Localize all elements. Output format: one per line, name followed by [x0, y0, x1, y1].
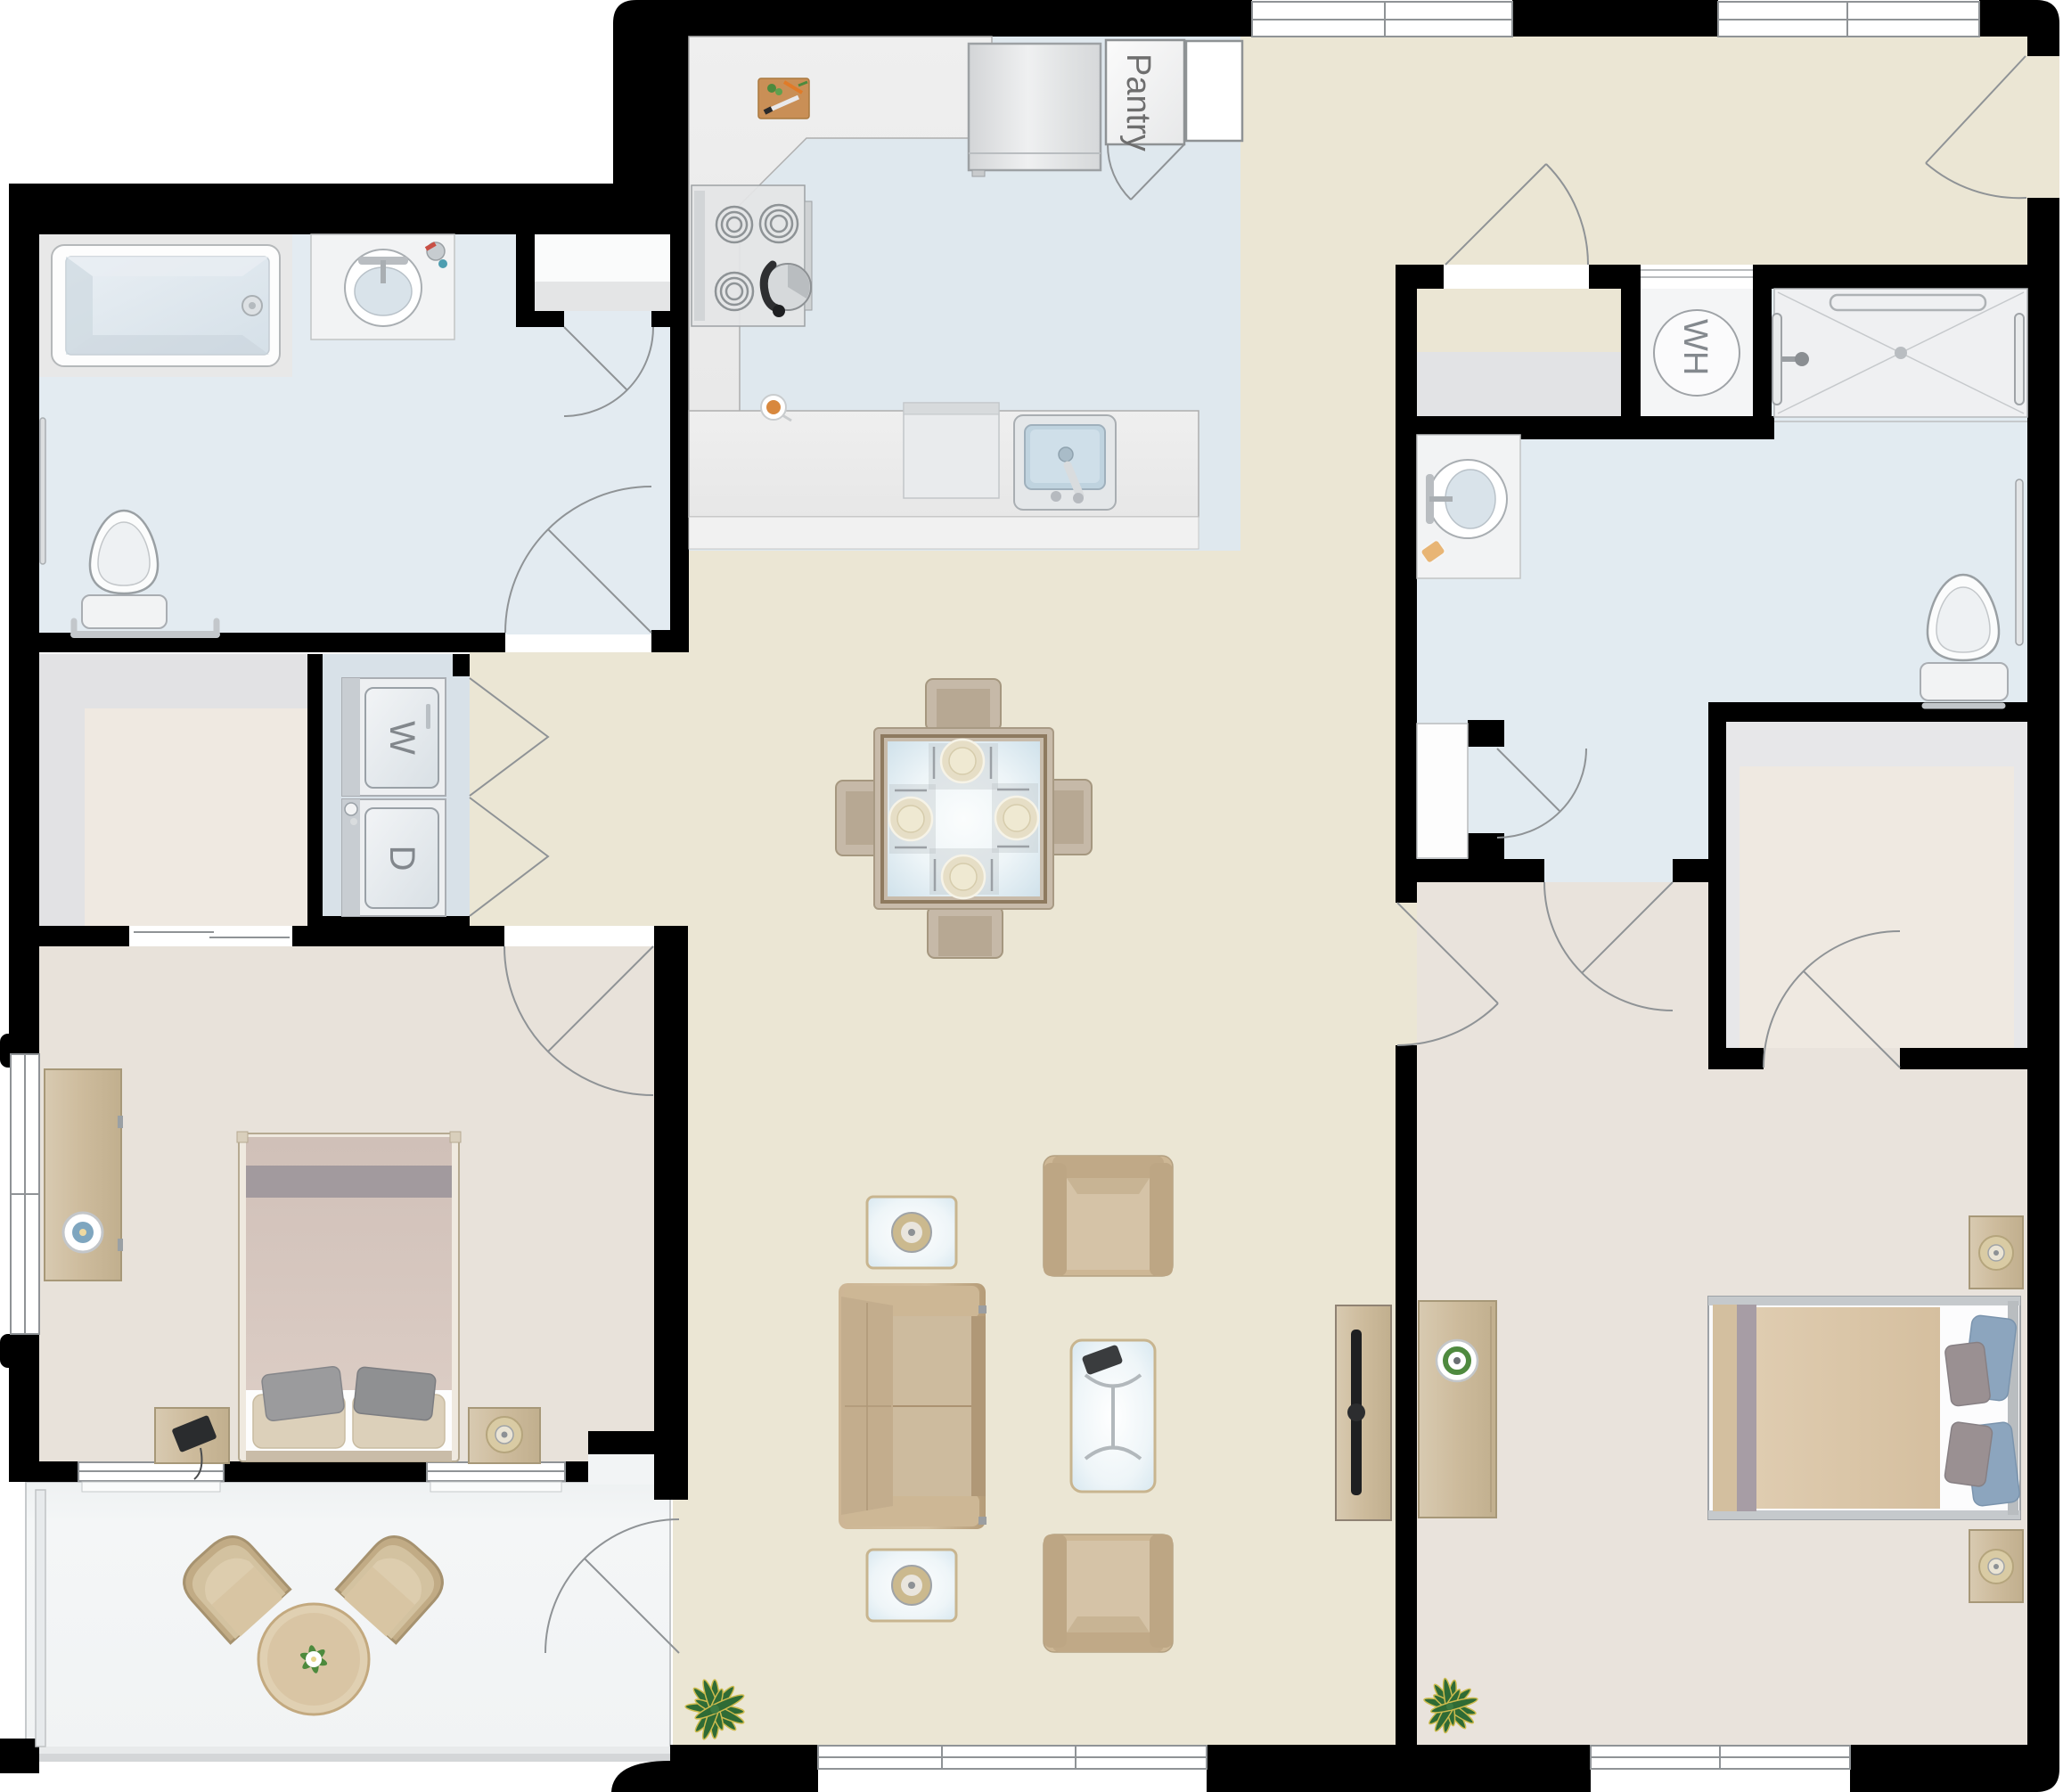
svg-text:W: W [382, 721, 422, 755]
svg-text:D: D [382, 846, 422, 871]
svg-text:WH: WH [1676, 319, 1714, 375]
svg-text:Pantry: Pantry [1119, 53, 1157, 151]
